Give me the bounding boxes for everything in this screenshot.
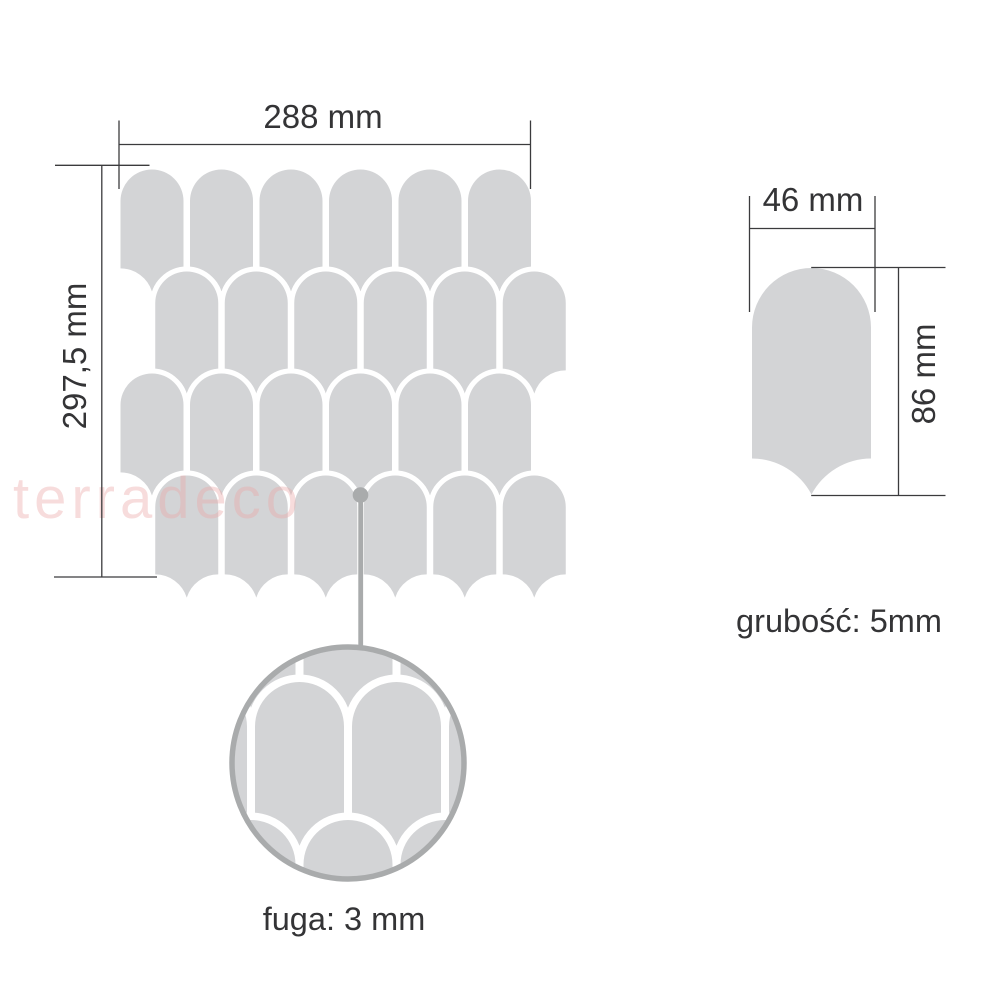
svg-text:fuga: 3 mm: fuga: 3 mm xyxy=(263,901,426,937)
svg-text:terradeco: terradeco xyxy=(13,466,303,531)
svg-text:297,5 mm: 297,5 mm xyxy=(56,283,93,430)
svg-text:288 mm: 288 mm xyxy=(263,98,382,135)
svg-text:46 mm: 46 mm xyxy=(763,181,864,218)
svg-text:86 mm: 86 mm xyxy=(905,324,942,425)
svg-text:grubość: 5mm: grubość: 5mm xyxy=(736,603,942,639)
